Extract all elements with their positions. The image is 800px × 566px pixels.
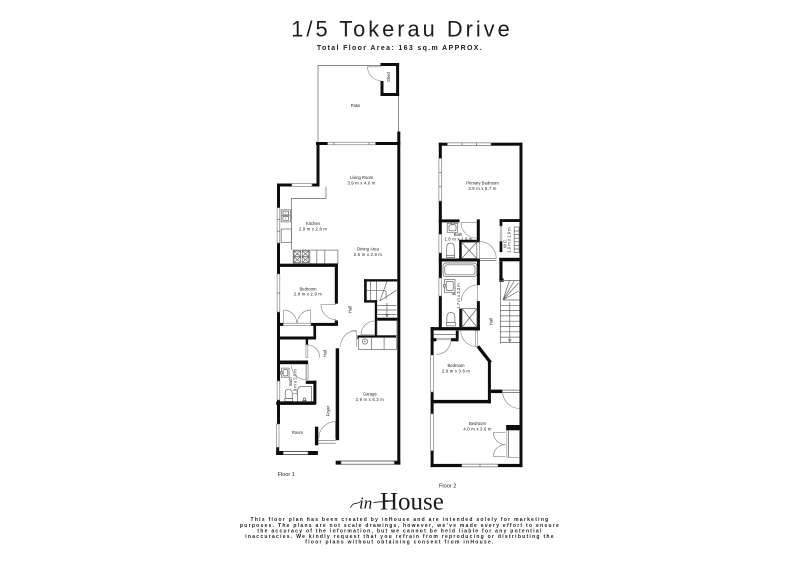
svg-text:floor plans without obtaining: floor plans without obtaining consent fr… bbox=[305, 540, 494, 546]
svg-text:Primary Bedroom: Primary Bedroom bbox=[466, 180, 499, 185]
svg-text:Hall: Hall bbox=[323, 350, 328, 357]
svg-text:Garage: Garage bbox=[363, 391, 378, 396]
svg-text:Dining Area: Dining Area bbox=[357, 247, 379, 252]
svg-text:Patio: Patio bbox=[351, 103, 361, 108]
svg-text:Shed: Shed bbox=[386, 71, 391, 81]
svg-text:2.5 m x 2.9 m: 2.5 m x 2.9 m bbox=[354, 252, 383, 257]
svg-text:Floor 1: Floor 1 bbox=[278, 472, 295, 478]
svg-text:1.7 m x 3.3 m: 1.7 m x 3.3 m bbox=[456, 283, 461, 309]
svg-text:2.9 m x 3.8 m: 2.9 m x 3.8 m bbox=[442, 369, 471, 374]
svg-text:Bedroom: Bedroom bbox=[448, 363, 466, 368]
svg-text:Total Floor Area: 163 sq.m APP: Total Floor Area: 163 sq.m APPROX. bbox=[317, 45, 483, 52]
svg-text:2.9 m x 6.3 m: 2.9 m x 6.3 m bbox=[356, 397, 385, 402]
svg-text:Foyer: Foyer bbox=[326, 405, 331, 416]
svg-text:3.9 m x 5.7 m: 3.9 m x 5.7 m bbox=[468, 186, 497, 191]
svg-text:Room: Room bbox=[292, 430, 304, 435]
svg-text:Hall: Hall bbox=[488, 318, 493, 325]
svg-text:House: House bbox=[380, 489, 444, 516]
svg-text:in: in bbox=[359, 494, 372, 513]
svg-text:Hall: Hall bbox=[348, 306, 353, 313]
svg-text:Kitchen: Kitchen bbox=[306, 221, 321, 226]
svg-text:3.9 m x 4.0 m: 3.9 m x 4.0 m bbox=[347, 181, 376, 186]
svg-text:Bedroom: Bedroom bbox=[469, 421, 487, 426]
svg-text:1/5 Tokerau Drive: 1/5 Tokerau Drive bbox=[291, 17, 512, 42]
svg-text:Bedroom: Bedroom bbox=[300, 286, 318, 291]
svg-text:2.9 m x 2.8 m: 2.9 m x 2.8 m bbox=[299, 226, 328, 231]
svg-text:2.8 m x 2.9 m: 2.8 m x 2.9 m bbox=[294, 292, 323, 297]
svg-text:Living Room: Living Room bbox=[350, 175, 374, 180]
svg-text:1.0 m x 1.9 m: 1.0 m x 1.9 m bbox=[507, 227, 512, 253]
svg-text:4.0 m x 3.6 m: 4.0 m x 3.6 m bbox=[463, 427, 492, 432]
